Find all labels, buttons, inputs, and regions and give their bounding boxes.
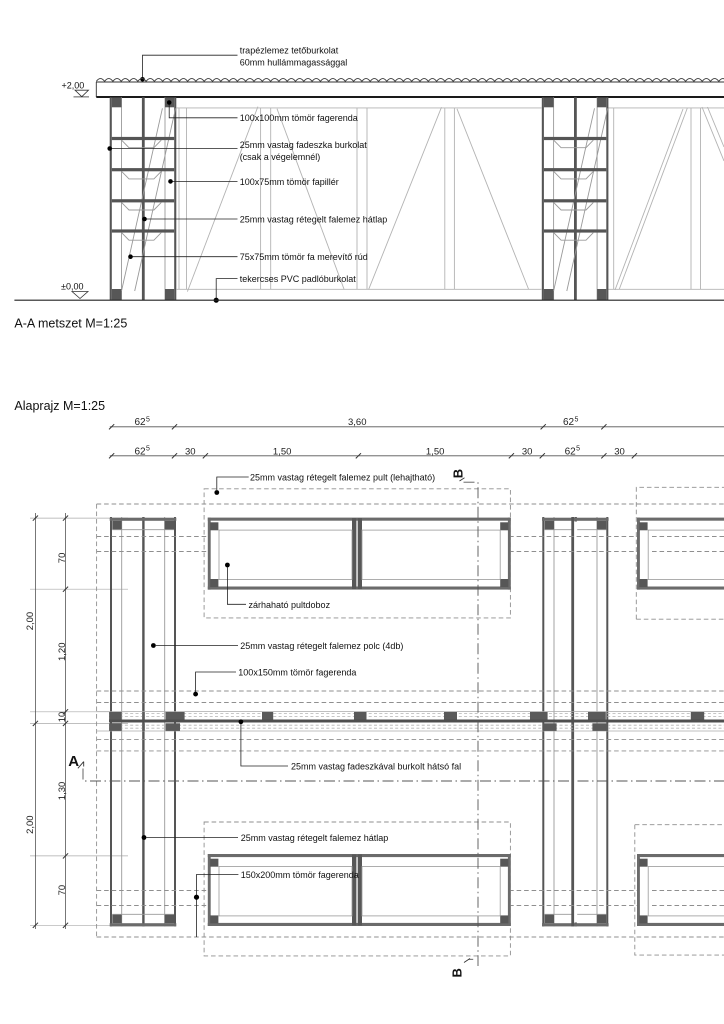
svg-text:30: 30 — [185, 446, 196, 457]
svg-text:zárhaható pultdoboz: zárhaható pultdoboz — [249, 600, 331, 610]
svg-text:5: 5 — [576, 446, 580, 453]
svg-text:25mm vastag rétegelt falemez p: 25mm vastag rétegelt falemez pult (lehaj… — [250, 473, 435, 483]
svg-text:10: 10 — [57, 712, 68, 723]
svg-text:1,50: 1,50 — [273, 446, 292, 457]
svg-text:1,30: 1,30 — [57, 782, 68, 801]
svg-text:70: 70 — [57, 553, 68, 564]
svg-text:(csak a végelemnél): (csak a végelemnél) — [240, 152, 321, 162]
svg-text:trapézlemez tetőburkolat: trapézlemez tetőburkolat — [240, 46, 339, 56]
svg-text:25mm vastag rétegelt falemez h: 25mm vastag rétegelt falemez hátlap — [241, 833, 389, 843]
svg-text:100x150mm tömör fagerenda: 100x150mm tömör fagerenda — [238, 667, 356, 677]
svg-text:A-A metszet M=1:25: A-A metszet M=1:25 — [14, 317, 127, 331]
svg-text:25mm vastag rétegelt falemez p: 25mm vastag rétegelt falemez polc (4db) — [240, 641, 403, 651]
svg-text:2,00: 2,00 — [25, 815, 36, 834]
svg-text:25mm vastag rétegelt falemez h: 25mm vastag rétegelt falemez hátlap — [240, 214, 388, 224]
svg-text:150x200mm tömör fagerenda: 150x200mm tömör fagerenda — [241, 870, 359, 880]
svg-text:1,50: 1,50 — [426, 446, 445, 457]
svg-text:30: 30 — [614, 446, 625, 457]
svg-text:tekercses PVC padlóburkolat: tekercses PVC padlóburkolat — [240, 274, 357, 284]
svg-text:30: 30 — [522, 446, 533, 457]
svg-text:5: 5 — [146, 446, 150, 453]
svg-text:+2,00: +2,00 — [62, 81, 85, 91]
svg-text:Alaprajz M=1:25: Alaprajz M=1:25 — [14, 399, 105, 413]
svg-text:25mm vastag fadeszkával burkol: 25mm vastag fadeszkával burkolt hátsó fa… — [291, 761, 461, 771]
svg-text:75x75mm tömör fa merevítő rúd: 75x75mm tömör fa merevítő rúd — [240, 252, 368, 262]
svg-text:5: 5 — [575, 416, 579, 423]
svg-text:A: A — [68, 753, 79, 770]
svg-text:±0,00: ±0,00 — [61, 282, 83, 292]
svg-text:62: 62 — [563, 417, 575, 428]
svg-text:B: B — [450, 469, 465, 478]
svg-text:62: 62 — [135, 446, 147, 457]
svg-text:2,00: 2,00 — [25, 612, 36, 631]
svg-text:3,60: 3,60 — [348, 417, 367, 428]
svg-text:25mm vastag fadeszka burkolat: 25mm vastag fadeszka burkolat — [240, 140, 368, 150]
svg-text:B: B — [449, 968, 464, 977]
svg-text:100x75mm tömör fapillér: 100x75mm tömör fapillér — [240, 177, 339, 187]
svg-text:62: 62 — [135, 417, 147, 428]
svg-text:62: 62 — [565, 446, 577, 457]
svg-text:60mm hullámmagassággal: 60mm hullámmagassággal — [240, 58, 348, 68]
svg-text:100x100mm tömör fagerenda: 100x100mm tömör fagerenda — [240, 113, 358, 123]
svg-text:5: 5 — [146, 416, 150, 423]
svg-text:70: 70 — [57, 885, 68, 896]
svg-text:1,20: 1,20 — [57, 643, 68, 662]
